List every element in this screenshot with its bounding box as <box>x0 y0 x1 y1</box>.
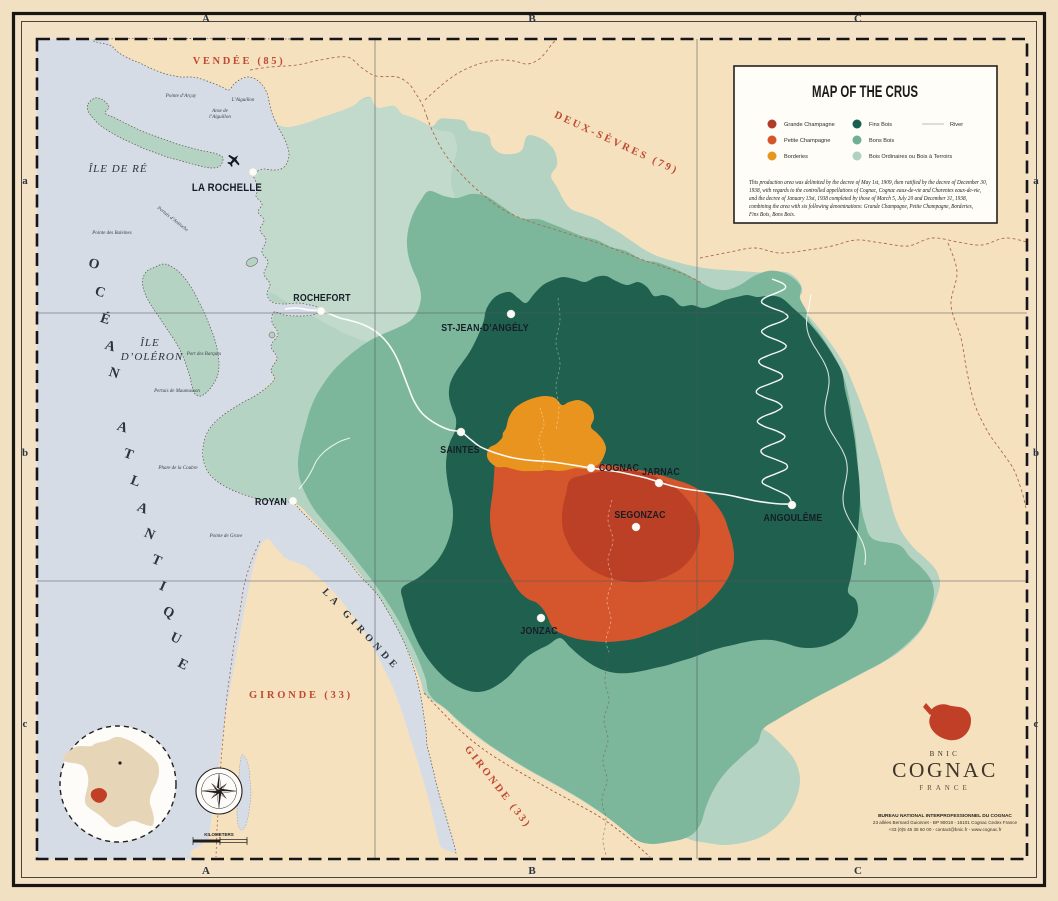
svg-text:Pertuis de Maumusson: Pertuis de Maumusson <box>153 389 200 394</box>
svg-text:Bons Bois: Bons Bois <box>869 138 894 144</box>
svg-text:Anse de: Anse de <box>211 109 228 114</box>
svg-text:COGNAC: COGNAC <box>892 758 998 782</box>
svg-text:a: a <box>1033 175 1039 187</box>
svg-text:l’Aiguillon: l’Aiguillon <box>209 115 231 120</box>
svg-text:Borderies: Borderies <box>784 154 808 160</box>
svg-text:A: A <box>202 13 210 25</box>
svg-text:SAINTES: SAINTES <box>440 444 480 456</box>
svg-text:and the decree of January 13st: and the decree of January 13st, 1938 com… <box>749 195 967 202</box>
svg-text:c: c <box>23 718 28 730</box>
svg-text:VENDÉE (85): VENDÉE (85) <box>193 55 285 67</box>
svg-text:Pointe des Baleines: Pointe des Baleines <box>91 231 131 236</box>
svg-text:Petite Champagne: Petite Champagne <box>784 138 830 144</box>
svg-text:Bois Ordinaires ou Bois à Terr: Bois Ordinaires ou Bois à Terroirs <box>869 154 952 160</box>
svg-text:Phare de la Coubre: Phare de la Coubre <box>157 466 198 471</box>
svg-text:23 allées Bernard Guionnet - B: 23 allées Bernard Guionnet - BP 90018 - … <box>873 820 1018 825</box>
svg-text:FRANCE: FRANCE <box>919 784 971 792</box>
svg-text:Pointe de Grave: Pointe de Grave <box>209 534 244 539</box>
svg-text:SEGONZAC: SEGONZAC <box>614 509 665 521</box>
svg-text:Port des Barques: Port des Barques <box>186 352 222 357</box>
svg-text:GIRONDE (33): GIRONDE (33) <box>249 690 353 701</box>
svg-text:COGNAC: COGNAC <box>599 462 639 474</box>
svg-text:C: C <box>854 865 862 877</box>
svg-text:ROCHEFORT: ROCHEFORT <box>293 292 350 304</box>
svg-text:Fins Bois: Fins Bois <box>869 122 892 128</box>
svg-text:ÎLE: ÎLE <box>139 337 160 349</box>
svg-text:JARNAC: JARNAC <box>642 466 680 478</box>
svg-text:c: c <box>1034 718 1039 730</box>
svg-text:BUREAU NATIONAL INTERPROFESSIO: BUREAU NATIONAL INTERPROFESSIONNEL DU CO… <box>878 813 1012 819</box>
svg-text:D’OLÉRON: D’OLÉRON <box>120 351 183 363</box>
svg-text:LA ROCHELLE: LA ROCHELLE <box>192 181 262 194</box>
svg-text:b: b <box>22 447 28 459</box>
svg-text:ANGOULÊME: ANGOULÊME <box>764 511 823 524</box>
svg-text:b: b <box>1033 447 1039 459</box>
svg-text:KILOMETERS: KILOMETERS <box>204 832 234 837</box>
svg-text:B: B <box>528 13 536 25</box>
svg-text:1938, with regards to the cont: 1938, with regards to the controlled app… <box>749 187 981 194</box>
svg-text:JONZAC: JONZAC <box>520 625 557 637</box>
svg-text:ST-JEAN-D’ANGÉLY: ST-JEAN-D’ANGÉLY <box>441 322 529 334</box>
svg-text:+33 (0)5 45 35 60 00 - contact: +33 (0)5 45 35 60 00 - contact@bnic.fr -… <box>889 827 1002 832</box>
svg-text:A: A <box>202 865 210 877</box>
svg-text:This production area was delim: This production area was delimited by th… <box>749 179 987 186</box>
svg-text:L’Aiguillon: L’Aiguillon <box>231 98 255 103</box>
svg-text:a: a <box>22 175 28 187</box>
svg-text:Pointe d’Arçay: Pointe d’Arçay <box>165 94 197 99</box>
svg-text:Fins Bois, Bons Bois.: Fins Bois, Bons Bois. <box>748 212 795 218</box>
svg-text:C: C <box>854 13 862 25</box>
svg-text:ÎLE DE RÉ: ÎLE DE RÉ <box>87 163 147 175</box>
svg-text:MAP OF THE CRUS: MAP OF THE CRUS <box>812 82 918 101</box>
svg-text:ROYAN: ROYAN <box>255 496 287 508</box>
svg-text:B: B <box>528 865 536 877</box>
svg-text:River: River <box>950 122 963 128</box>
svg-text:combining the area with six fo: combining the area with six following de… <box>749 203 973 210</box>
svg-text:BNIC: BNIC <box>930 750 961 758</box>
svg-text:Grande Champagne: Grande Champagne <box>784 122 835 128</box>
